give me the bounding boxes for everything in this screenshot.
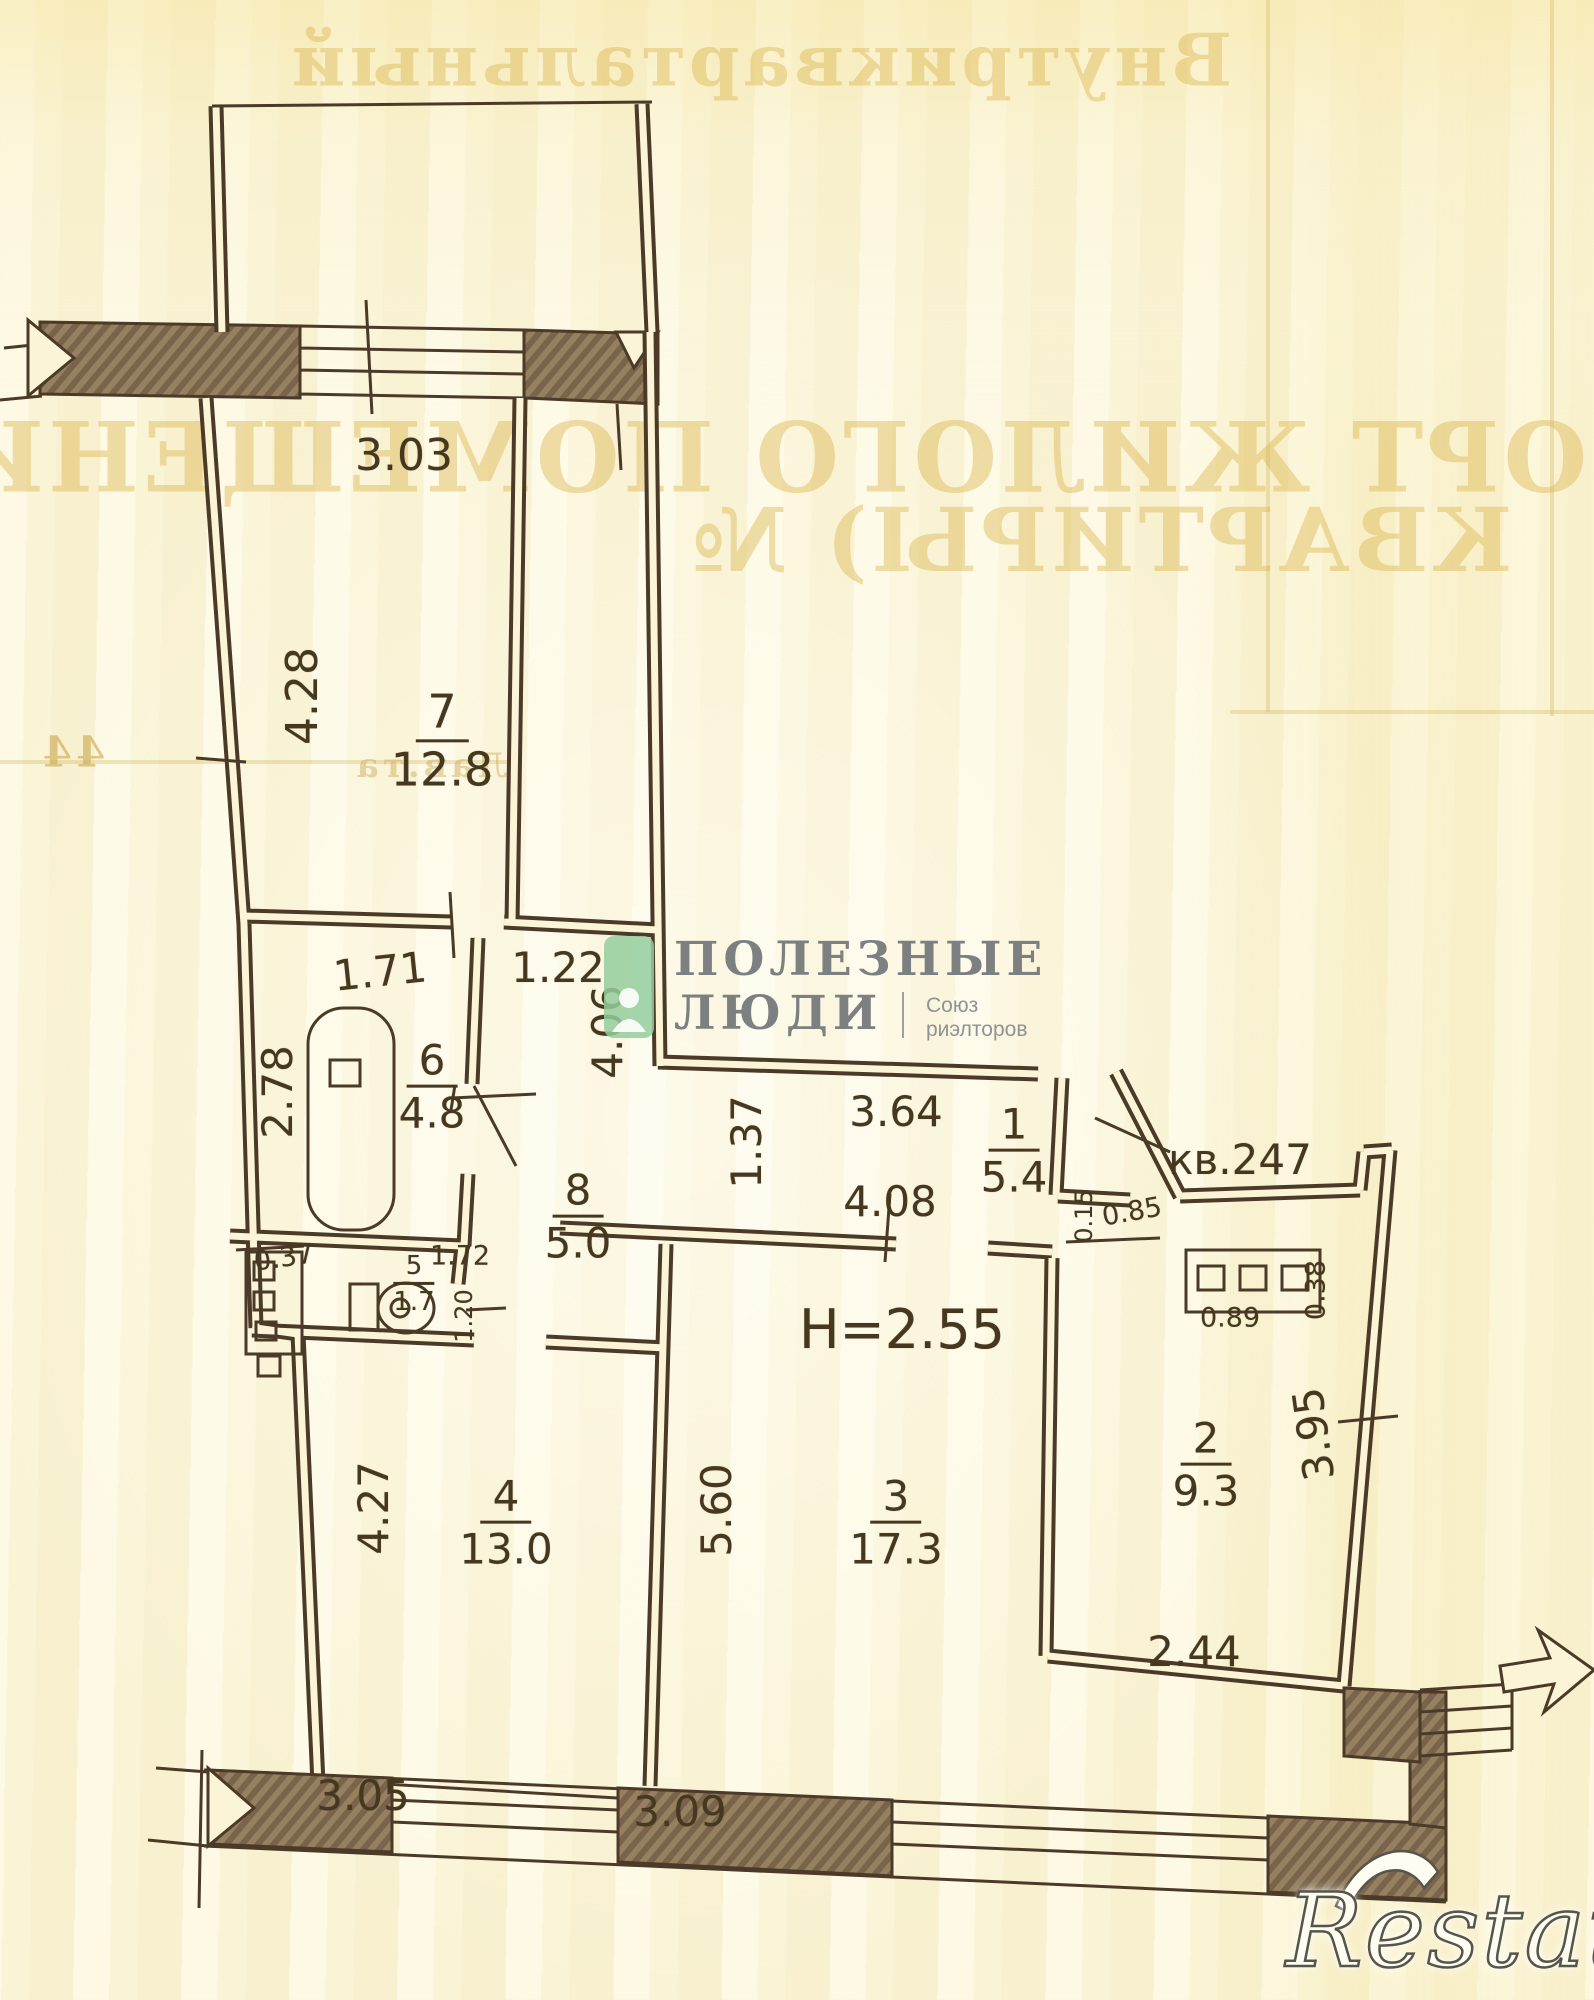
- dimension-label: 3.05: [316, 1775, 410, 1817]
- dimension-label: 0.85: [1100, 1193, 1164, 1230]
- dimension-label: 1.72: [430, 1243, 490, 1270]
- dimension-label: 0.15: [1072, 1189, 1096, 1242]
- room-area-label: 5.0: [545, 1218, 612, 1266]
- dimension-label: 0.38: [1303, 1260, 1330, 1320]
- room-number-label: 2: [1181, 1414, 1232, 1466]
- watermark-logo-icon: [604, 936, 654, 1038]
- room-area-label: 12.8: [391, 742, 493, 795]
- room-number-label: 4: [481, 1472, 532, 1524]
- room-number-label: 6: [407, 1036, 458, 1088]
- room-number-label: 5: [394, 1250, 435, 1285]
- room-area-label: 1.7: [393, 1285, 434, 1316]
- dimension-label: 1.37: [726, 1095, 768, 1189]
- dimension-label: 4.28: [281, 647, 325, 745]
- dimension-label: 2.78: [257, 1045, 299, 1139]
- watermark-brand-line2: ЛЮДИ: [674, 990, 882, 1037]
- watermark-brand-line1: ПОЛЕЗНЫЕ: [674, 936, 1047, 983]
- room-area-label: 17.3: [849, 1524, 943, 1572]
- scanned-floor-plan-page: { "page": { "width": 1594, "height": 200…: [0, 0, 1594, 2000]
- room-label: 317.3: [849, 1472, 943, 1573]
- room-label: 29.3: [1173, 1414, 1240, 1515]
- dimension-label: 4.27: [353, 1461, 395, 1555]
- restate-logo: Restate: [1286, 1872, 1594, 1991]
- dimension-label: 0.37: [252, 1240, 315, 1275]
- apartment-number-label: кв.247: [1168, 1139, 1312, 1181]
- room-area-label: 5.4: [981, 1152, 1048, 1200]
- watermark-union-line2: риэлторов: [926, 1018, 1028, 1041]
- ceiling-height-label: H=2.55: [799, 1303, 1005, 1357]
- dimension-label: 1.20: [452, 1289, 476, 1342]
- room-area-label: 13.0: [459, 1524, 553, 1572]
- room-number-label: 7: [415, 685, 468, 742]
- room-number-label: 3: [871, 1472, 922, 1524]
- dimension-label: 3.03: [355, 434, 453, 478]
- room-label: 413.0: [459, 1472, 553, 1573]
- room-area-label: 9.3: [1173, 1466, 1240, 1514]
- room-number-label: 1: [989, 1100, 1040, 1152]
- room-number-label: 8: [553, 1166, 604, 1218]
- watermark-divider: [902, 992, 904, 1038]
- dimension-label: 3.64: [849, 1091, 943, 1133]
- watermark-union-line1: Союз: [926, 994, 978, 1017]
- dimension-label: 4.08: [843, 1181, 937, 1223]
- room-label: 712.8: [391, 685, 493, 794]
- dimension-label: 3.09: [633, 1791, 727, 1833]
- dimension-label: 2.44: [1147, 1631, 1241, 1673]
- room-label: 64.8: [399, 1036, 466, 1137]
- room-label: 51.7: [393, 1250, 434, 1316]
- dimension-label: 5.60: [696, 1463, 738, 1557]
- room-area-label: 4.8: [399, 1088, 466, 1136]
- dimension-label: 1.71: [331, 946, 428, 998]
- dimension-label: 0.89: [1200, 1305, 1260, 1332]
- room-label: 15.4: [981, 1100, 1048, 1201]
- room-label: 85.0: [545, 1166, 612, 1267]
- dimension-label: 1.22: [511, 947, 605, 989]
- dimension-label: 3.95: [1287, 1385, 1342, 1483]
